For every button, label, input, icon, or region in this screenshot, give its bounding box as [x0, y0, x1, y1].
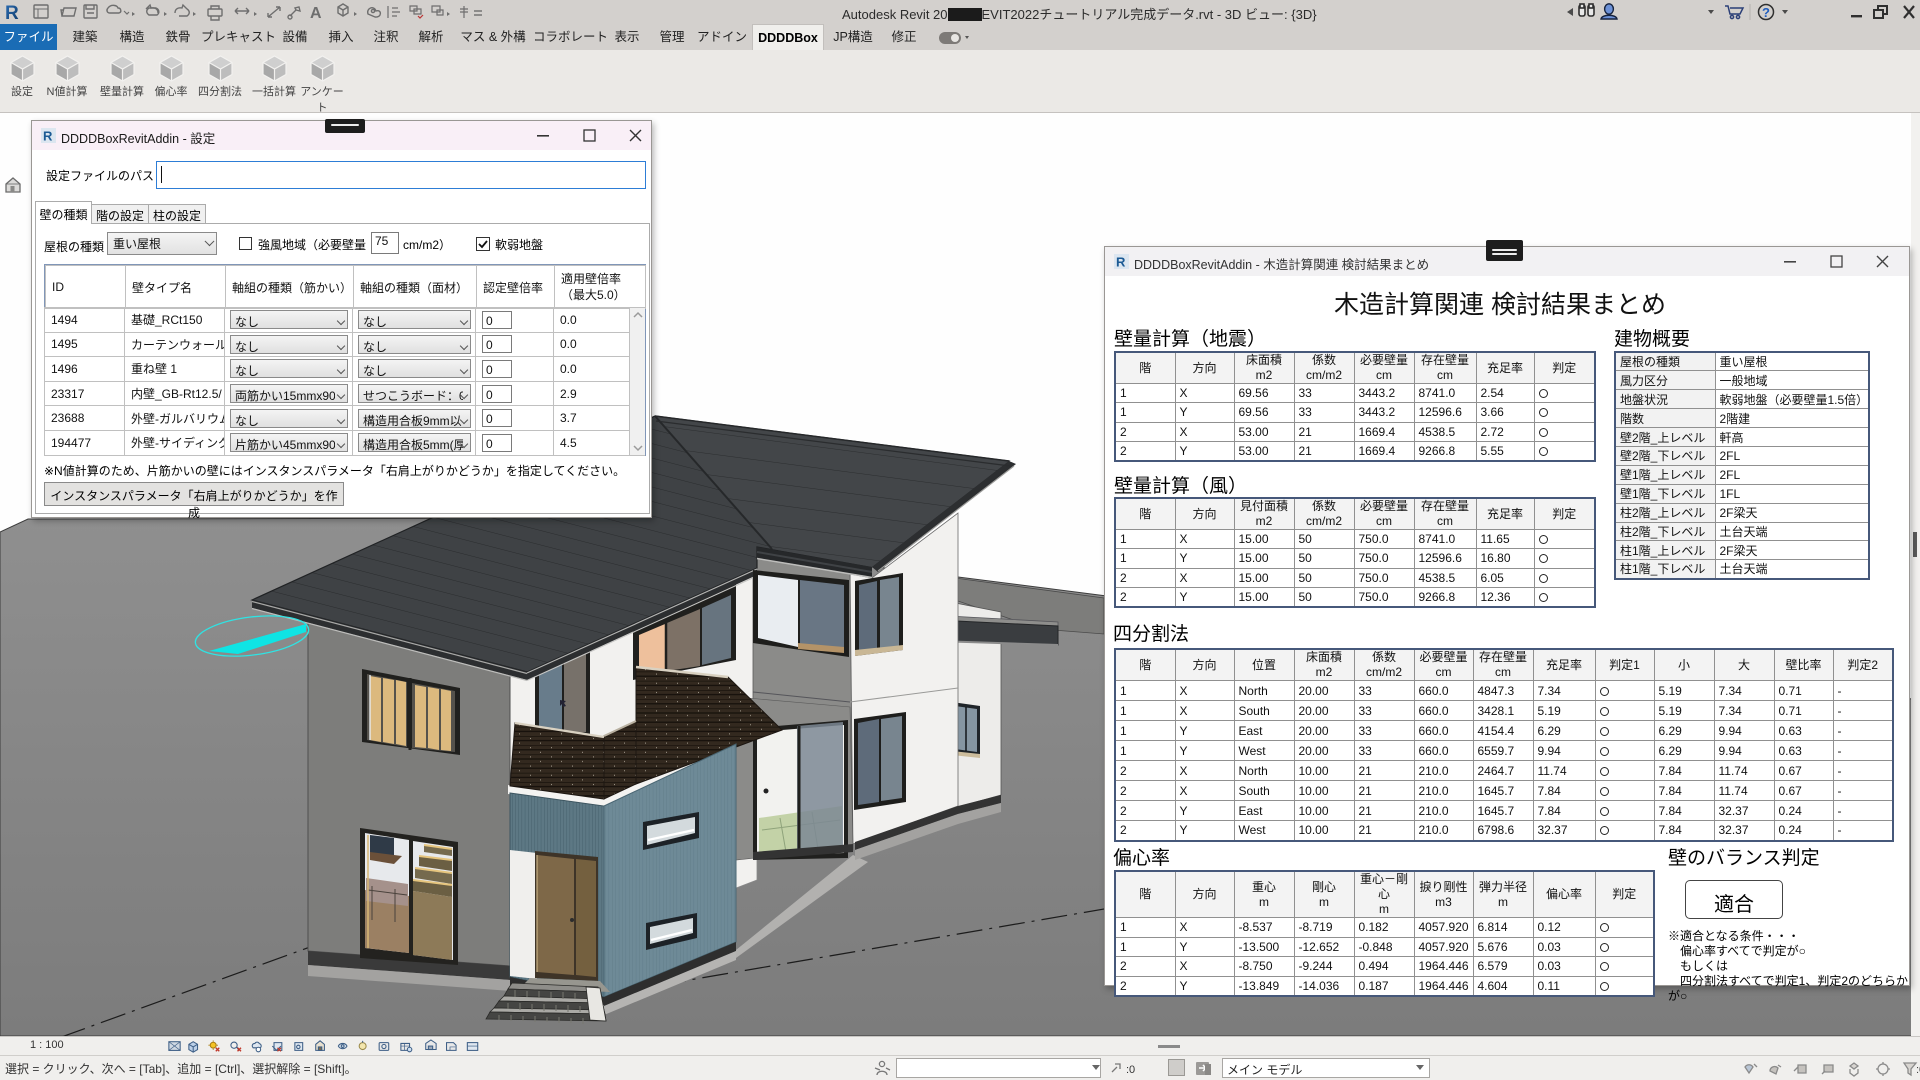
- svg-text:R: R: [5, 3, 19, 22]
- svg-text::0: :0: [1126, 1064, 1135, 1076]
- svg-text:R: R: [1116, 255, 1126, 270]
- svg-text:A: A: [310, 5, 322, 22]
- svg-text::0: :0: [1916, 1064, 1920, 1076]
- svg-text:R: R: [43, 129, 53, 144]
- svg-text:?: ?: [1762, 5, 1770, 20]
